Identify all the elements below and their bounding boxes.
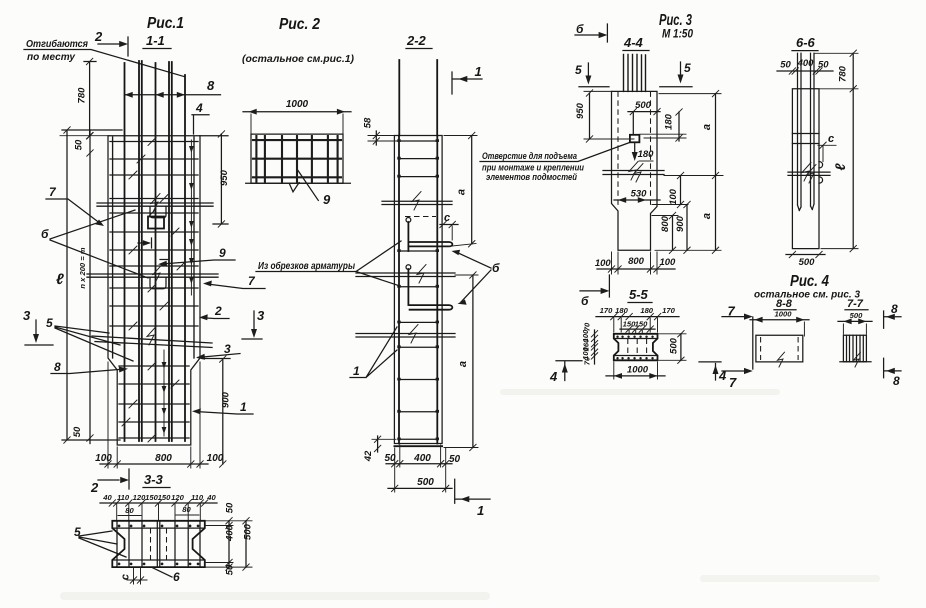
svg-text:б: б xyxy=(576,22,584,36)
svg-text:110: 110 xyxy=(191,493,204,502)
svg-text:150: 150 xyxy=(158,493,171,502)
svg-text:900: 900 xyxy=(221,391,232,408)
svg-text:950: 950 xyxy=(575,102,586,119)
svg-text:50: 50 xyxy=(449,454,461,465)
svg-text:1000: 1000 xyxy=(627,365,649,376)
svg-text:остальное см. рис. 3: остальное см. рис. 3 xyxy=(754,290,860,301)
svg-text:70: 70 xyxy=(583,356,592,365)
svg-text:7: 7 xyxy=(729,375,737,390)
svg-text:2-2: 2-2 xyxy=(406,33,427,48)
svg-text:8: 8 xyxy=(893,374,900,388)
svg-text:Из обрезков арматуры: Из обрезков арматуры xyxy=(258,260,355,272)
svg-text:500: 500 xyxy=(417,477,434,488)
svg-text:1: 1 xyxy=(475,64,482,79)
svg-text:5: 5 xyxy=(575,63,582,77)
svg-text:a: a xyxy=(457,361,469,367)
svg-text:50: 50 xyxy=(72,426,83,437)
svg-text:c: c xyxy=(828,133,834,145)
svg-text:500: 500 xyxy=(799,257,816,268)
svg-text:530: 530 xyxy=(631,189,648,200)
svg-text:9: 9 xyxy=(323,192,331,207)
svg-text:400: 400 xyxy=(413,453,431,464)
svg-text:100: 100 xyxy=(595,258,612,269)
svg-text:9: 9 xyxy=(219,246,226,260)
svg-text:8-8: 8-8 xyxy=(776,298,793,310)
svg-text:50: 50 xyxy=(74,139,85,150)
svg-text:780: 780 xyxy=(838,65,849,82)
svg-text:950: 950 xyxy=(219,169,230,186)
svg-text:по месту: по месту xyxy=(27,51,76,63)
svg-text:180: 180 xyxy=(664,113,675,130)
svg-text:100: 100 xyxy=(207,453,224,464)
svg-text:Рис. 4: Рис. 4 xyxy=(790,273,829,290)
svg-text:900: 900 xyxy=(675,215,686,232)
svg-text:Рис. 2: Рис. 2 xyxy=(279,16,320,33)
svg-text:500: 500 xyxy=(669,337,680,354)
svg-text:100: 100 xyxy=(659,257,676,268)
svg-text:(остальное см.рис.1): (остальное см.рис.1) xyxy=(242,54,355,65)
svg-text:3: 3 xyxy=(23,308,31,323)
svg-text:50: 50 xyxy=(384,453,396,464)
svg-text:7-7: 7-7 xyxy=(847,298,864,310)
svg-text:a: a xyxy=(456,189,468,195)
svg-text:1000: 1000 xyxy=(286,99,309,110)
svg-text:1: 1 xyxy=(353,364,360,378)
svg-text:800: 800 xyxy=(628,256,645,267)
svg-text:Отверстие для подъема: Отверстие для подъема xyxy=(482,151,577,162)
svg-text:6-6: 6-6 xyxy=(796,35,816,50)
svg-text:170: 170 xyxy=(662,306,675,315)
svg-text:180: 180 xyxy=(640,306,653,315)
svg-text:Отгибаются: Отгибаются xyxy=(26,38,88,50)
svg-text:2: 2 xyxy=(90,480,99,495)
svg-text:180: 180 xyxy=(638,149,655,160)
svg-text:1: 1 xyxy=(477,503,484,518)
svg-text:Рис.1: Рис.1 xyxy=(147,15,184,32)
svg-text:780: 780 xyxy=(77,87,88,104)
svg-text:150: 150 xyxy=(145,493,158,502)
svg-text:1-1: 1-1 xyxy=(146,33,165,48)
svg-text:б: б xyxy=(41,227,49,241)
svg-text:120: 120 xyxy=(171,493,184,502)
svg-text:4-4: 4-4 xyxy=(623,35,644,50)
svg-text:80: 80 xyxy=(125,506,134,515)
svg-text:2: 2 xyxy=(94,29,103,44)
svg-text:ℓ: ℓ xyxy=(56,271,64,288)
svg-text:150: 150 xyxy=(635,320,648,329)
svg-text:б: б xyxy=(581,294,589,308)
svg-text:4: 4 xyxy=(195,101,203,115)
svg-text:40: 40 xyxy=(102,493,112,502)
svg-text:500: 500 xyxy=(850,311,863,320)
svg-text:120: 120 xyxy=(133,493,146,502)
svg-text:50: 50 xyxy=(818,60,829,71)
svg-text:100: 100 xyxy=(668,188,679,205)
svg-text:500: 500 xyxy=(243,523,254,540)
svg-text:5: 5 xyxy=(46,316,53,330)
svg-text:500: 500 xyxy=(635,100,652,111)
svg-text:800: 800 xyxy=(155,453,172,464)
svg-text:c: c xyxy=(120,574,132,580)
svg-text:ℓ: ℓ xyxy=(832,163,848,171)
svg-text:8: 8 xyxy=(54,360,61,374)
svg-text:8: 8 xyxy=(207,78,215,93)
svg-text:40: 40 xyxy=(206,493,216,502)
svg-text:a: a xyxy=(701,213,713,219)
svg-text:400: 400 xyxy=(225,524,236,542)
svg-text:50: 50 xyxy=(225,564,236,575)
svg-text:4: 4 xyxy=(549,369,558,384)
svg-text:3-3: 3-3 xyxy=(144,472,164,487)
svg-text:100: 100 xyxy=(95,453,112,464)
svg-text:170: 170 xyxy=(600,306,613,315)
svg-text:4: 4 xyxy=(718,368,727,383)
svg-text:42: 42 xyxy=(363,450,374,462)
svg-text:800: 800 xyxy=(660,215,671,232)
svg-text:б: б xyxy=(492,261,500,275)
svg-text:1: 1 xyxy=(240,400,247,414)
svg-text:М 1:50: М 1:50 xyxy=(662,27,693,41)
svg-text:1000: 1000 xyxy=(775,310,793,319)
svg-text:6: 6 xyxy=(173,570,180,584)
svg-text:a: a xyxy=(701,124,713,130)
svg-text:элементов подмостей: элементов подмостей xyxy=(486,172,577,183)
svg-text:400: 400 xyxy=(797,58,815,69)
svg-text:58: 58 xyxy=(363,117,374,128)
svg-text:110: 110 xyxy=(117,493,130,502)
svg-text:3: 3 xyxy=(257,308,265,323)
svg-text:50: 50 xyxy=(225,502,236,513)
svg-text:80: 80 xyxy=(182,505,191,514)
svg-text:5-5: 5-5 xyxy=(629,287,649,302)
svg-text:50: 50 xyxy=(780,60,791,71)
svg-text:5: 5 xyxy=(684,61,691,75)
svg-text:2: 2 xyxy=(214,304,222,318)
